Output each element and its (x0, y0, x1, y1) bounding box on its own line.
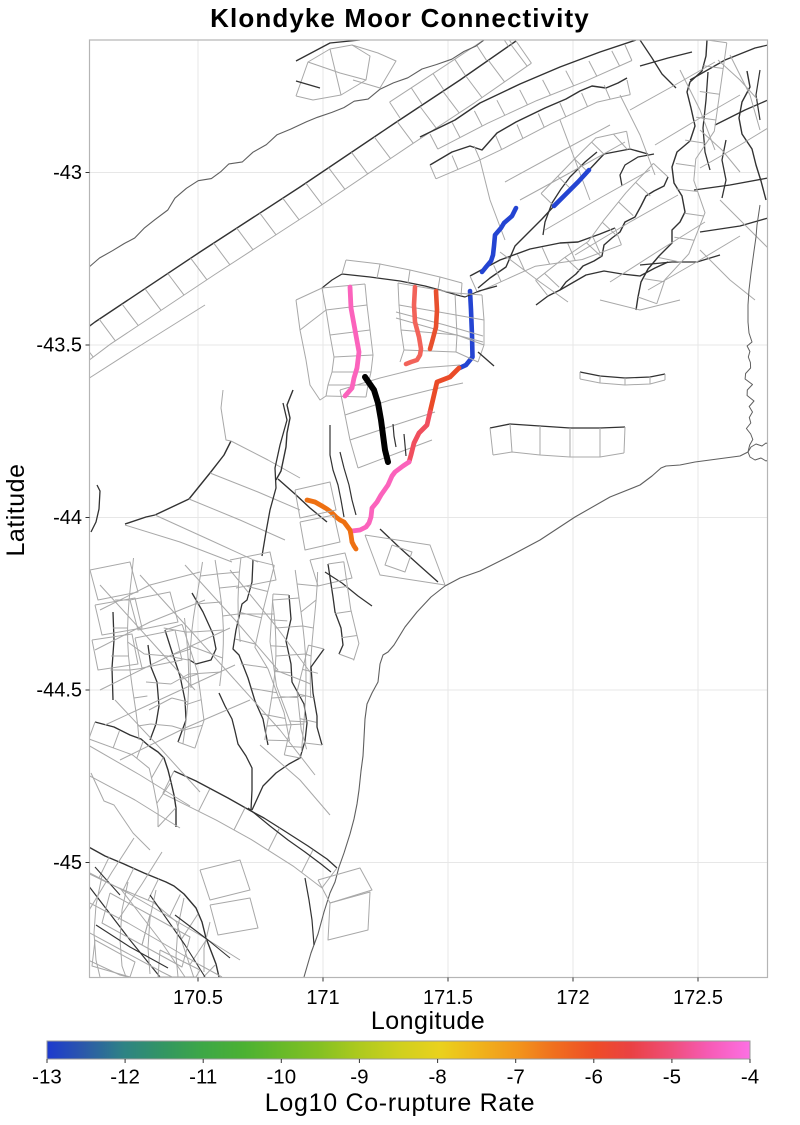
svg-text:-12: -12 (110, 1066, 140, 1089)
svg-text:Klondyke Moor Connectivity: Klondyke Moor Connectivity (210, 3, 590, 33)
svg-text:171: 171 (306, 987, 339, 1009)
svg-text:-10: -10 (266, 1066, 296, 1089)
svg-text:-44: -44 (53, 507, 82, 529)
svg-text:-5: -5 (663, 1066, 681, 1089)
svg-text:-11: -11 (189, 1066, 217, 1089)
svg-text:-44.5: -44.5 (36, 680, 82, 702)
svg-text:-13: -13 (32, 1066, 62, 1089)
svg-text:-7: -7 (507, 1066, 525, 1089)
svg-text:-45: -45 (53, 852, 82, 874)
svg-text:-6: -6 (585, 1066, 603, 1089)
svg-text:172.5: 172.5 (673, 987, 723, 1009)
svg-text:-9: -9 (350, 1066, 368, 1089)
svg-text:171.5: 171.5 (423, 987, 473, 1009)
svg-text:Longitude: Longitude (371, 1007, 485, 1035)
svg-text:Log10 Co-rupture Rate: Log10 Co-rupture Rate (265, 1089, 535, 1117)
svg-text:-8: -8 (428, 1066, 446, 1089)
svg-text:-4: -4 (741, 1066, 759, 1089)
svg-text:Latitude: Latitude (2, 464, 30, 557)
svg-text:172: 172 (556, 987, 589, 1009)
svg-text:-43: -43 (53, 162, 82, 184)
svg-text:170.5: 170.5 (173, 987, 223, 1009)
svg-text:-43.5: -43.5 (36, 335, 82, 357)
